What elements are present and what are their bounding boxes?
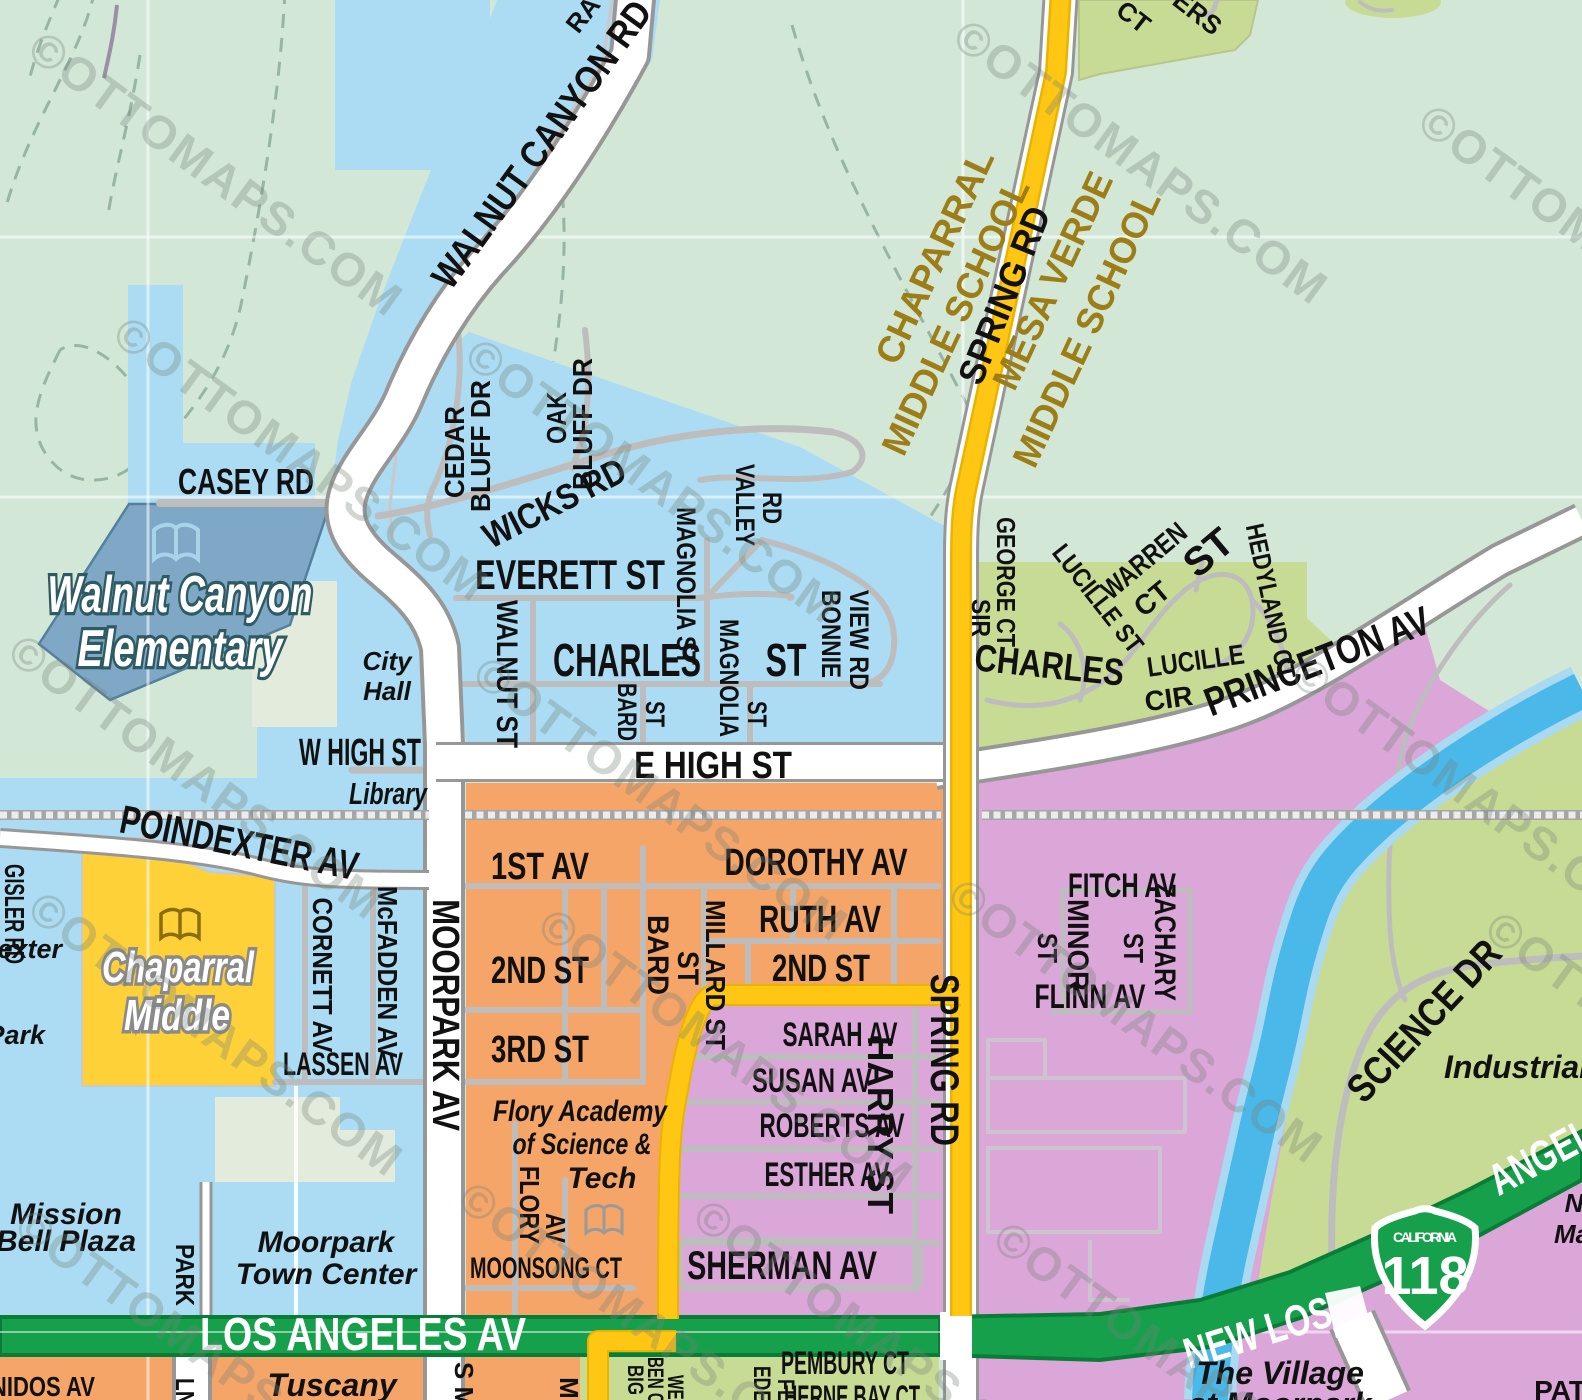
svg-text:Town Center: Town Center (236, 1258, 419, 1291)
svg-text:2ND ST: 2ND ST (772, 948, 870, 990)
svg-text:SPRING RD: SPRING RD (922, 974, 967, 1146)
svg-text:ST: ST (741, 701, 772, 727)
svg-text:S M: S M (449, 1362, 479, 1400)
svg-text:W HIGH ST: W HIGH ST (299, 731, 421, 773)
svg-text:Elementary: Elementary (78, 619, 285, 677)
svg-text:City: City (362, 646, 413, 676)
svg-text:M: M (554, 1377, 584, 1399)
svg-text:UNIDOS AV: UNIDOS AV (0, 1372, 95, 1400)
svg-text:Walnut Canyon: Walnut Canyon (48, 565, 313, 624)
svg-text:Moorpark: Moorpark (258, 1226, 396, 1259)
svg-text:CHARLES: CHARLES (553, 636, 701, 687)
svg-text:RD: RD (756, 492, 786, 524)
svg-text:Park: Park (0, 1020, 47, 1050)
svg-text:1ST AV: 1ST AV (491, 845, 589, 888)
svg-text:VIEW RD: VIEW RD (844, 590, 874, 690)
svg-text:LN: LN (169, 1378, 198, 1400)
svg-text:Hall: Hall (363, 676, 411, 706)
svg-text:BLUFF DR: BLUFF DR (464, 380, 496, 512)
svg-text:Tech: Tech (568, 1162, 637, 1195)
svg-text:EVERETT ST: EVERETT ST (475, 551, 665, 598)
svg-text:SIR: SIR (966, 599, 995, 637)
svg-text:CALIFORNIA: CALIFORNIA (1393, 1229, 1457, 1245)
svg-text:Industrial: Industrial (1444, 1049, 1582, 1085)
svg-text:PAT: PAT (1534, 1375, 1582, 1400)
svg-text:N: N (1565, 1188, 1582, 1218)
svg-text:MAGNOLIA: MAGNOLIA (713, 619, 743, 737)
svg-text:Library: Library (349, 776, 428, 811)
svg-text:ZACHARY: ZACHARY (1148, 883, 1182, 1001)
svg-text:3RD ST: 3RD ST (491, 1029, 589, 1071)
svg-text:Flory Academy: Flory Academy (493, 1094, 668, 1128)
svg-text:GEORGE CT: GEORGE CT (990, 517, 1019, 647)
svg-text:ST: ST (1117, 933, 1147, 963)
svg-text:ST: ST (639, 701, 670, 727)
svg-text:McFADDEN AV: McFADDEN AV (372, 886, 404, 1059)
svg-text:CORNETT AV: CORNETT AV (307, 898, 339, 1053)
svg-text:118: 118 (1381, 1246, 1468, 1306)
svg-text:Ma: Ma (1554, 1219, 1582, 1249)
svg-text:MOORPARK AV: MOORPARK AV (424, 899, 466, 1131)
svg-text:ST: ST (765, 635, 806, 686)
svg-text:of Science &: of Science & (513, 1127, 652, 1161)
